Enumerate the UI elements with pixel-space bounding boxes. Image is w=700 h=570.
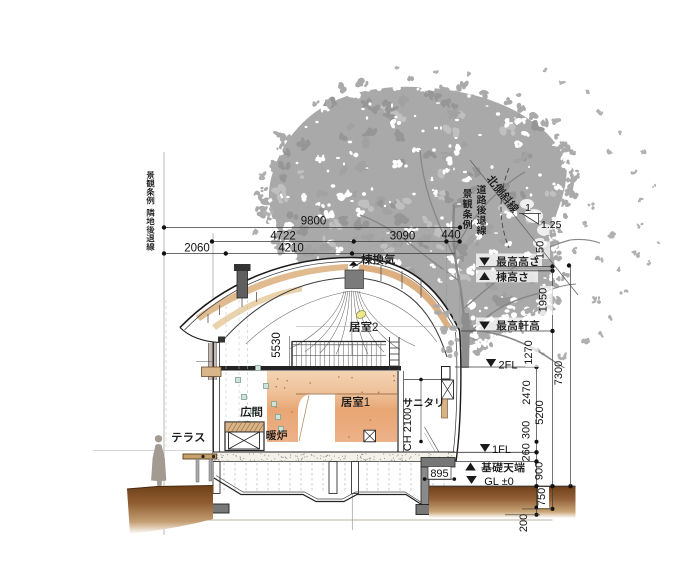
svg-text:2FL: 2FL <box>499 360 518 372</box>
svg-text:5200: 5200 <box>534 400 546 424</box>
svg-text:1270: 1270 <box>523 340 535 364</box>
svg-text:440: 440 <box>441 230 460 242</box>
svg-text:2470: 2470 <box>521 380 533 404</box>
svg-text:895: 895 <box>430 468 448 480</box>
svg-text:1: 1 <box>364 397 370 409</box>
svg-text:1.25: 1.25 <box>541 219 562 231</box>
svg-text:200: 200 <box>518 514 530 532</box>
svg-text:9800: 9800 <box>301 216 327 228</box>
svg-text:2060: 2060 <box>184 243 210 255</box>
svg-text:300: 300 <box>521 421 533 439</box>
svg-text:2: 2 <box>372 322 378 334</box>
svg-text:3090: 3090 <box>390 231 416 243</box>
svg-text:1FL: 1FL <box>492 444 511 456</box>
svg-text:CH 2100: CH 2100 <box>402 408 414 451</box>
svg-text:4722: 4722 <box>270 231 296 243</box>
svg-text:5530: 5530 <box>271 332 283 358</box>
svg-text:4210: 4210 <box>278 243 304 255</box>
svg-text:150: 150 <box>535 241 547 259</box>
svg-text:750: 750 <box>536 488 548 506</box>
svg-text:GL ±0: GL ±0 <box>484 476 513 488</box>
svg-text:1950: 1950 <box>538 288 550 312</box>
svg-text:1: 1 <box>525 202 531 214</box>
svg-text:900: 900 <box>534 462 546 480</box>
svg-text:7300: 7300 <box>553 361 565 385</box>
svg-text:260: 260 <box>521 443 533 461</box>
